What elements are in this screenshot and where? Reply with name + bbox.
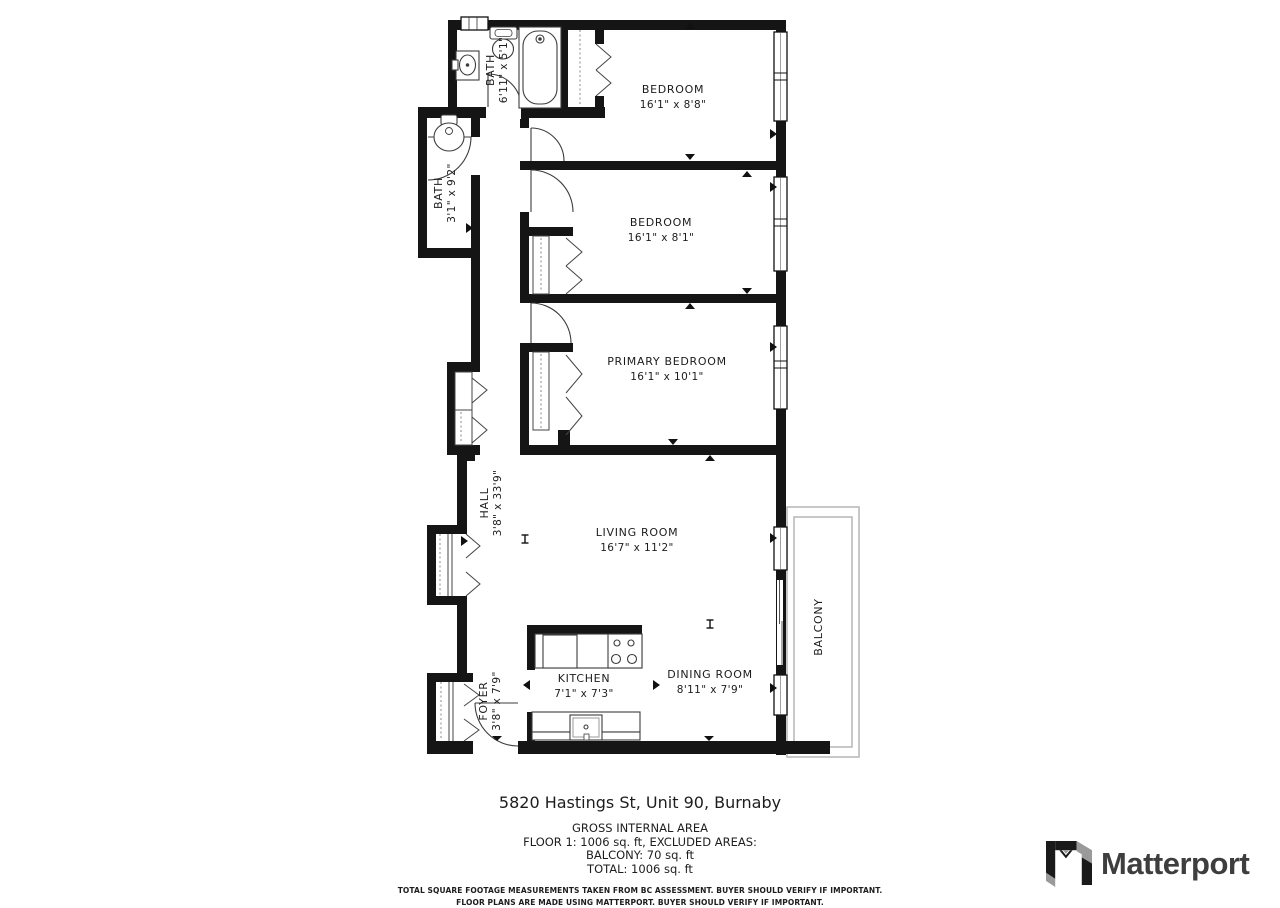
bedroom-2-door — [531, 170, 573, 212]
bath-window — [461, 17, 488, 30]
room-label-hall: HALL 3'8" x 33'9" — [478, 470, 504, 537]
room-label-bedroom-1: BEDROOM 16'1" x 8'8" — [640, 83, 707, 111]
room-label-balcony: BALCONY — [812, 598, 825, 655]
bedroom-1-door — [531, 128, 564, 161]
svg-text:PRIMARY BEDROOM: PRIMARY BEDROOM — [607, 355, 727, 368]
kitchen-fixtures — [532, 634, 642, 740]
svg-text:3'8" x 7'9": 3'8" x 7'9" — [491, 671, 503, 730]
primary-bedroom-door — [531, 303, 571, 343]
matterport-logo-text: Matterport — [1101, 846, 1249, 882]
svg-text:16'1" x 8'8": 16'1" x 8'8" — [640, 99, 707, 111]
svg-text:LIVING ROOM: LIVING ROOM — [596, 526, 679, 539]
refrigerator — [543, 635, 577, 668]
bedroom-1-window — [774, 32, 787, 121]
svg-text:DINING ROOM: DINING ROOM — [667, 668, 753, 681]
room-label-kitchen: KITCHEN 7'1" x 7'3" — [554, 672, 613, 700]
primary-bedroom-closet — [533, 352, 582, 435]
svg-text:16'1" x 8'1": 16'1" x 8'1" — [628, 232, 695, 244]
room-label-bedroom-2: BEDROOM 16'1" x 8'1" — [628, 216, 695, 244]
svg-text:BEDROOM: BEDROOM — [630, 216, 692, 229]
room-label-dining-room: DINING ROOM 8'11" x 7'9" — [667, 668, 753, 696]
svg-text:16'1" x 10'1": 16'1" x 10'1" — [630, 371, 704, 383]
bathtub — [519, 27, 561, 108]
bath-upper-sink — [452, 51, 479, 80]
stove — [608, 634, 642, 668]
svg-text:6'11" x 5'1": 6'11" x 5'1" — [498, 37, 510, 104]
room-label-primary-bedroom: PRIMARY BEDROOM 16'1" x 10'1" — [607, 355, 727, 383]
svg-text:KITCHEN: KITCHEN — [558, 672, 611, 685]
matterport-logo: Matterport — [1046, 841, 1249, 887]
svg-text:HALL: HALL — [478, 487, 491, 518]
disclaimer-line-2: FLOOR PLANS ARE MADE USING MATTERPORT. B… — [0, 897, 1280, 908]
svg-text:3'1" x 9'2": 3'1" x 9'2" — [446, 163, 458, 222]
matterport-logo-icon — [1046, 841, 1092, 887]
kitchen-island — [532, 712, 640, 740]
bedroom-2-closet — [533, 236, 582, 294]
area-summary-heading: GROSS INTERNAL AREA — [0, 822, 1280, 836]
svg-text:BATH: BATH — [484, 54, 497, 86]
svg-text:BATH: BATH — [432, 177, 445, 209]
room-label-foyer: FOYER 3'8" x 7'9" — [477, 671, 503, 730]
hall-closet — [440, 534, 480, 596]
svg-text:BALCONY: BALCONY — [812, 598, 825, 655]
foyer-closet — [441, 682, 479, 741]
svg-text:16'7" x 11'2": 16'7" x 11'2" — [600, 542, 674, 554]
svg-text:7'1" x 7'3": 7'1" x 7'3" — [554, 688, 613, 700]
svg-text:8'11" x 7'9": 8'11" x 7'9" — [677, 684, 744, 696]
svg-text:3'8" x 33'9": 3'8" x 33'9" — [492, 470, 504, 537]
room-label-living-room: LIVING ROOM 16'7" x 11'2" — [596, 526, 679, 554]
primary-bedroom-window — [774, 326, 787, 409]
bedroom-2-window — [774, 177, 787, 271]
floor-plan: BEDROOM 16'1" x 8'8" BEDROOM 16'1" x 8'1… — [0, 0, 1280, 905]
bath-hall-toilet — [434, 115, 464, 151]
room-label-bath-hall: BATH 3'1" x 9'2" — [432, 163, 458, 222]
svg-text:BEDROOM: BEDROOM — [642, 83, 704, 96]
property-address: 5820 Hastings St, Unit 90, Burnaby — [0, 793, 1280, 812]
svg-text:FOYER: FOYER — [477, 681, 490, 720]
hall-linen-closet — [455, 372, 487, 445]
